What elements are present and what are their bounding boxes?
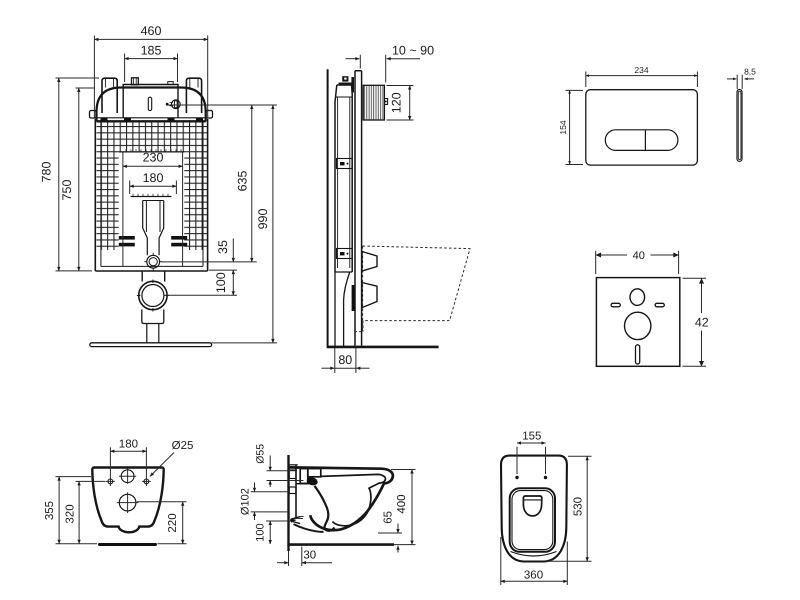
svg-text:750: 750	[60, 180, 74, 201]
svg-text:635: 635	[235, 171, 249, 192]
svg-text:40: 40	[633, 250, 645, 262]
svg-text:220: 220	[167, 513, 179, 532]
svg-text:Ø102: Ø102	[239, 488, 251, 515]
svg-text:100: 100	[254, 523, 266, 541]
svg-text:80: 80	[338, 353, 352, 367]
svg-text:Ø55: Ø55	[254, 444, 266, 464]
svg-text:Ø25: Ø25	[172, 440, 194, 452]
svg-text:180: 180	[119, 439, 138, 451]
svg-text:65: 65	[383, 511, 395, 524]
svg-text:120: 120	[390, 92, 404, 113]
svg-text:234: 234	[634, 65, 648, 75]
svg-text:230: 230	[143, 151, 164, 165]
svg-text:42: 42	[695, 316, 709, 330]
svg-text:154: 154	[558, 120, 568, 134]
svg-text:8,5: 8,5	[744, 67, 756, 77]
svg-text:460: 460	[141, 24, 162, 38]
svg-text:355: 355	[44, 501, 56, 520]
svg-text:530: 530	[573, 497, 585, 516]
svg-text:360: 360	[524, 570, 543, 582]
svg-text:320: 320	[64, 504, 76, 523]
svg-text:780: 780	[40, 162, 54, 183]
svg-text:990: 990	[256, 209, 270, 230]
svg-text:10 ~ 90: 10 ~ 90	[392, 44, 434, 58]
svg-text:180: 180	[143, 171, 164, 185]
svg-text:30: 30	[303, 550, 316, 562]
svg-text:400: 400	[396, 494, 408, 513]
svg-text:100: 100	[214, 272, 228, 293]
svg-text:155: 155	[522, 430, 541, 442]
svg-text:185: 185	[141, 43, 162, 57]
svg-text:35: 35	[216, 240, 230, 254]
